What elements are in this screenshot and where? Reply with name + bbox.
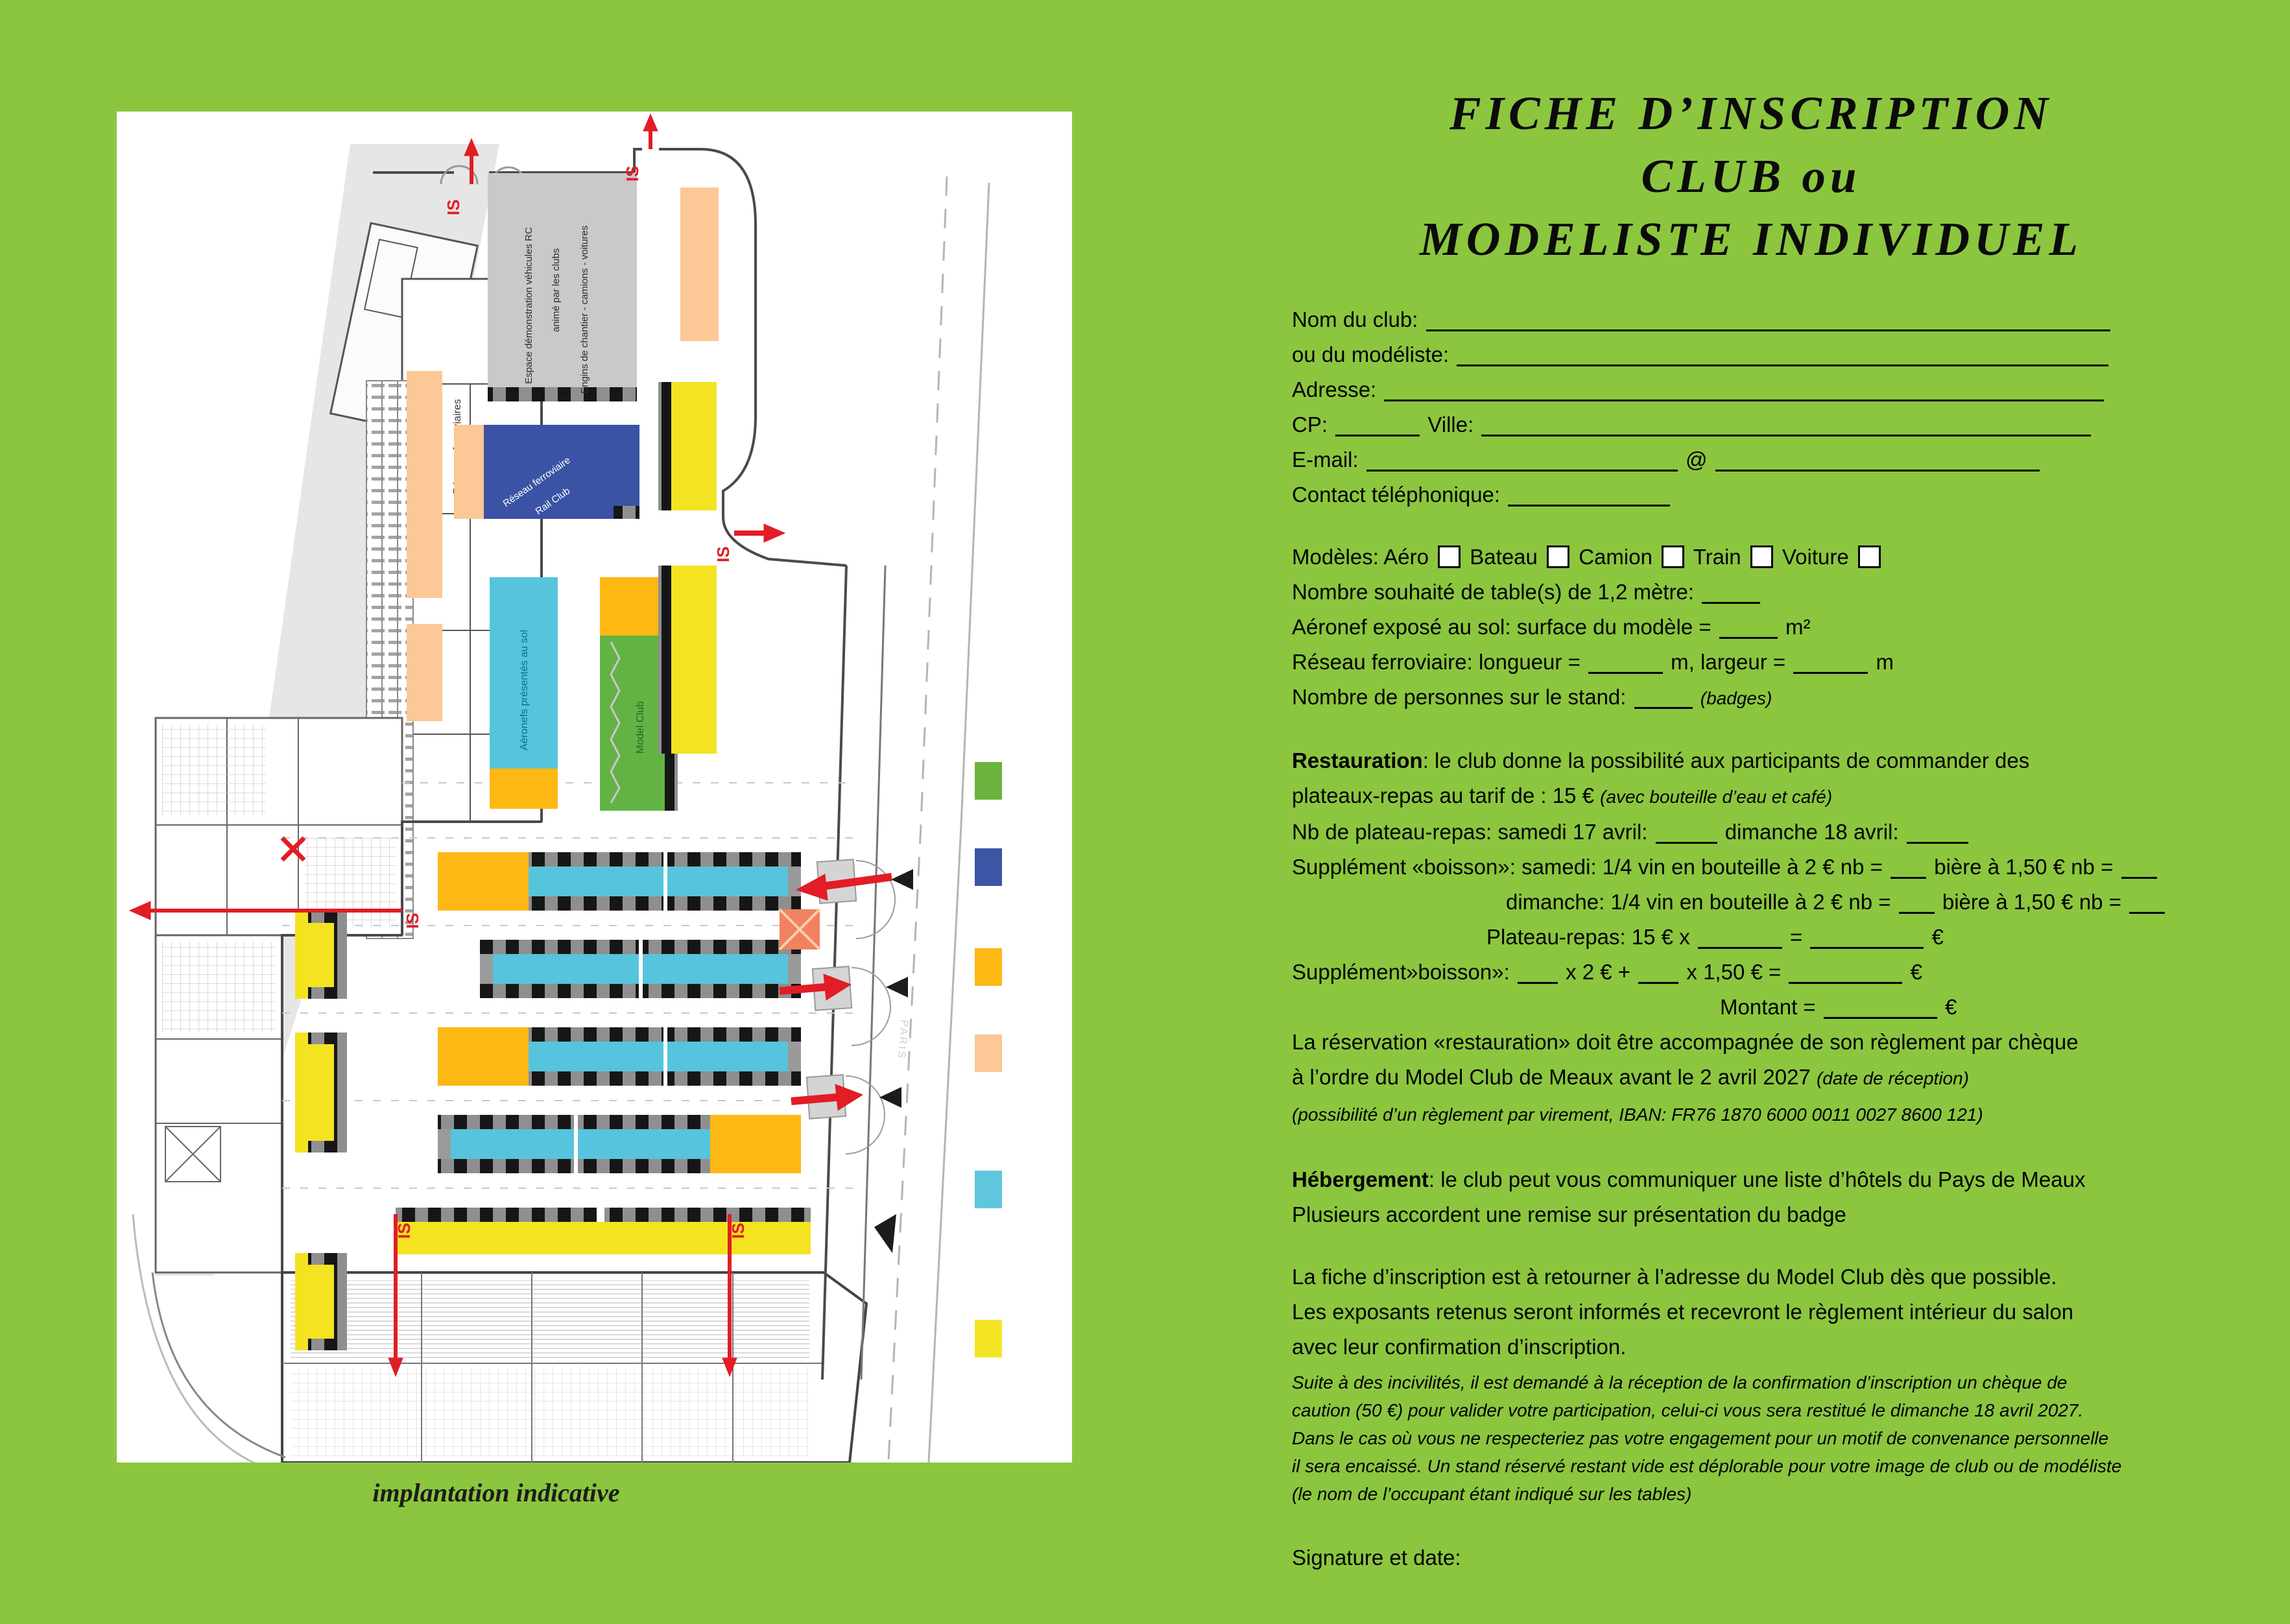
blank-field[interactable] [1457, 343, 2108, 366]
form-text: x 1,50 € = [1680, 960, 1787, 984]
blank-field[interactable] [1715, 448, 2040, 472]
form-text: m, largeur = [1665, 650, 1791, 674]
legend-swatch-yellow [975, 1320, 1002, 1357]
stand-peach-top-right [680, 187, 719, 341]
form-text: Bateau [1464, 545, 1544, 569]
form-line: Nombre de personnes sur le stand: (badge… [1292, 680, 2271, 716]
title-line-2: CLUB ou [1258, 145, 2244, 208]
form-text: Dans le cas où vous ne respecteriez pas … [1292, 1428, 2108, 1448]
form-line: Suite à des incivilités, il est demandé … [1292, 1368, 2271, 1396]
form-text: avec leur confirmation d’inscription. [1292, 1335, 1626, 1359]
form-text: Train [1688, 545, 1747, 569]
blank-field[interactable] [1719, 615, 1778, 639]
checkbox[interactable] [1438, 545, 1461, 568]
form-text: E-mail: [1292, 448, 1365, 472]
form-text: CP: [1292, 412, 1333, 436]
form-line: (possibilité d’un règlement par virement… [1292, 1096, 2271, 1132]
page: { "title": { "l1": "FICHE D’INSCRIPTION"… [0, 0, 2290, 1624]
svg-text:Model Club: Model Club [635, 701, 646, 754]
stand-rail-club: Réseau ferroviaire Rail Club [454, 425, 639, 519]
form-line: Nombre souhaité de table(s) de 1,2 mètre… [1292, 575, 2271, 610]
blank-field[interactable] [1426, 308, 2110, 331]
sidewalk-curve [152, 1272, 285, 1457]
blank-field[interactable] [1810, 925, 1924, 949]
svg-text:IS: IS [403, 913, 422, 929]
form-text: à l’ordre du Model Club de Meaux avant l… [1292, 1065, 1817, 1089]
form-line: Nb de plateau-repas: samedi 17 avril: di… [1292, 815, 2271, 850]
form-line: Nom du club: [1292, 302, 2271, 337]
svg-text:IS: IS [623, 165, 642, 182]
svg-text:Engins de chantier - camions -: Engins de chantier - camions - voitures [579, 226, 590, 394]
stand-yellow-left-2 [295, 1033, 347, 1152]
stand-bottom-strip [396, 1208, 811, 1254]
floor-plan-panel: PARIS [117, 112, 1072, 1463]
form-text: plateaux-repas au tarif de : 15 € [1292, 783, 1600, 807]
reserved-cross-box [780, 909, 820, 949]
stand-yellow-left-1 [295, 911, 347, 999]
blank-field[interactable] [1366, 448, 1678, 472]
road-name-label: PARIS [896, 1020, 910, 1060]
legend [975, 762, 1002, 1357]
svg-text:IS: IS [444, 199, 463, 215]
form-line: Modèles: Aéro Bateau Camion Train Voitur… [1292, 540, 2271, 575]
form-text: @ [1680, 448, 1713, 472]
blank-field[interactable] [1634, 686, 1693, 709]
table-row-4 [438, 1115, 801, 1173]
form-text: Voiture [1776, 545, 1855, 569]
form-line: avec leur confirmation d’inscription. [1292, 1330, 2271, 1365]
form-text: Contact téléphonique: [1292, 483, 1506, 507]
blank-field[interactable] [1518, 961, 1558, 984]
form-line: Montant = € [1720, 990, 2271, 1025]
blank-field[interactable] [1656, 820, 1717, 844]
plan-caption: implantation indicative [237, 1477, 756, 1508]
legend-swatch-orange [975, 948, 1002, 986]
svg-text:IS: IS [713, 546, 733, 562]
form-text: Nb de plateau-repas: samedi 17 avril: [1292, 820, 1654, 844]
form-text: Nombre de personnes sur le stand: [1292, 685, 1632, 709]
form-line: CP: Ville: [1292, 407, 2271, 442]
form-line: La fiche d’inscription est à retourner à… [1292, 1260, 2271, 1295]
form-text: dimanche: 1/4 vin en bouteille à 2 € nb … [1506, 890, 1897, 914]
form-text: € [1939, 995, 1957, 1019]
form-text: (le nom de l’occupant étant indiqué sur … [1292, 1484, 1691, 1504]
form-text: € [1926, 925, 1944, 949]
form-text: m² [1780, 615, 1811, 639]
blank-field[interactable] [1638, 961, 1678, 984]
legend-swatch-blue [975, 848, 1002, 886]
stand-peach-left-1 [407, 371, 442, 598]
stand-aeronefs: Aéronefs présentés au sol [490, 577, 558, 809]
form-line: Plusieurs accordent une remise sur prése… [1292, 1197, 2271, 1232]
form-text: Montant = [1720, 995, 1822, 1019]
form-text: Ville: [1422, 412, 1479, 436]
floor-plan-svg: PARIS [117, 112, 1072, 1463]
title-line-3: MODELISTE INDIVIDUEL [1258, 208, 2244, 270]
form-text: Adresse: [1292, 377, 1382, 401]
form-line: E-mail: @ [1292, 442, 2271, 477]
form-text: (badges) [1700, 688, 1772, 708]
checkbox[interactable] [1750, 545, 1773, 568]
form-line: La réservation «restauration» doit être … [1292, 1025, 2271, 1060]
blank-field[interactable] [1890, 855, 1926, 879]
blank-field[interactable] [1824, 996, 1937, 1019]
form-text: Hébergement [1292, 1167, 1429, 1191]
form-text: caution (50 €) pour valider votre partic… [1292, 1400, 2083, 1420]
blank-field[interactable] [1588, 651, 1663, 674]
form-line: dimanche: 1/4 vin en bouteille à 2 € nb … [1506, 885, 2271, 920]
form-text: bière à 1,50 € nb = [1928, 855, 2119, 879]
form-text: Signature et date: [1292, 1546, 1461, 1570]
svg-text:Aéronefs présentés au sol: Aéronefs présentés au sol [519, 630, 530, 750]
form-text: Camion [1573, 545, 1658, 569]
legend-swatch-peach [975, 1034, 1002, 1072]
road-lines [889, 176, 989, 1463]
table-row-1 [438, 852, 801, 911]
blank-field[interactable] [1384, 378, 2104, 401]
blank-field[interactable] [1481, 413, 2091, 436]
form-text: ou du modéliste: [1292, 342, 1455, 366]
form-line: Les exposants retenus seront informés et… [1292, 1295, 2271, 1330]
form-text: Supplément»boisson»: [1292, 960, 1516, 984]
checkbox[interactable] [1662, 545, 1684, 568]
corridor-doors [807, 859, 895, 1154]
form-text [1695, 685, 1700, 709]
form-text: (date de réception) [1817, 1068, 1969, 1088]
blank-field[interactable] [1702, 580, 1760, 604]
registration-form: Nom du club: ou du modéliste: Adresse: C… [1292, 302, 2271, 1575]
stand-yellow-right-2 [658, 566, 717, 754]
blank-field[interactable] [2121, 855, 2157, 879]
form-text: La fiche d’inscription est à retourner à… [1292, 1265, 2057, 1289]
form-line: Plateau-repas: 15 € x = € [1486, 920, 2271, 955]
form-text: Suite à des incivilités, il est demandé … [1292, 1372, 2067, 1392]
blank-field[interactable] [1789, 961, 1902, 984]
form-line: Adresse: [1292, 372, 2271, 407]
form-text: Nom du club: [1292, 307, 1424, 331]
form-line: ou du modéliste: [1292, 337, 2271, 372]
form-line: Aéronef exposé au sol: surface du modèle… [1292, 610, 2271, 645]
blank-field[interactable] [1335, 413, 1420, 436]
form-text: Supplément «boisson»: samedi: 1/4 vin en… [1292, 855, 1889, 879]
form-line: plateaux-repas au tarif de : 15 € (avec … [1292, 778, 2271, 815]
form-text: : le club donne la possibilité aux parti… [1423, 748, 2030, 772]
title-line-1: FICHE D’INSCRIPTION [1258, 82, 2244, 145]
legend-swatch-cyan [975, 1171, 1002, 1208]
form-line: caution (50 €) pour valider votre partic… [1292, 1396, 2271, 1424]
blank-field[interactable] [1907, 820, 1968, 844]
form-text: (avec bouteille d’eau et café) [1600, 787, 1832, 807]
form-text: dimanche 18 avril: [1719, 820, 1905, 844]
checkbox[interactable] [1858, 545, 1881, 568]
blank-field[interactable] [1793, 651, 1868, 674]
form-text: Plusieurs accordent une remise sur prése… [1292, 1202, 1846, 1226]
blank-field[interactable] [2129, 890, 2165, 914]
form-text: Réseau ferroviaire: longueur = [1292, 650, 1586, 674]
form-line: Supplément»boisson»: x 2 € + x 1,50 € = … [1292, 955, 2271, 990]
stand-yellow-left-3 [295, 1253, 347, 1350]
direction-triangles [874, 869, 913, 1253]
form-line: Signature et date: [1292, 1540, 2271, 1575]
form-line: à l’ordre du Model Club de Meaux avant l… [1292, 1060, 2271, 1096]
blank-field[interactable] [1698, 925, 1782, 949]
blank-field[interactable] [1899, 890, 1935, 914]
form-text: m [1870, 650, 1894, 674]
stand-espace-demo: Espace démonstration véhicules RC animé … [488, 173, 637, 401]
stand-peach-left-2 [407, 624, 442, 721]
svg-text:animé par les clubs: animé par les clubs [551, 248, 562, 332]
form-text: € [1904, 960, 1922, 984]
left-rooms [156, 718, 402, 1272]
form-text: La réservation «restauration» doit être … [1292, 1030, 2079, 1054]
form-text: = [1784, 925, 1809, 949]
svg-text:IS: IS [728, 1223, 748, 1239]
form-line: Réseau ferroviaire: longueur = m, largeu… [1292, 645, 2271, 680]
form-text: Aéronef exposé au sol: surface du modèle… [1292, 615, 1717, 639]
form-line: il sera encaissé. Un stand réservé resta… [1292, 1452, 2271, 1480]
form-text: x 2 € + [1560, 960, 1636, 984]
form-line: Restauration: le club donne la possibili… [1292, 743, 2271, 778]
form-text: Les exposants retenus seront informés et… [1292, 1300, 2073, 1324]
form-text: : le club peut vous communiquer une list… [1429, 1167, 2086, 1191]
form-line: Hébergement: le club peut vous communiqu… [1292, 1162, 2271, 1197]
form-line: (le nom de l’occupant étant indiqué sur … [1292, 1480, 2271, 1508]
form-text: Plateau-repas: 15 € x [1486, 925, 1696, 949]
stand-yellow-right-1 [658, 382, 717, 510]
table-row-2 [480, 940, 801, 998]
form-line: Dans le cas où vous ne respecteriez pas … [1292, 1424, 2271, 1452]
page-title: FICHE D’INSCRIPTION CLUB ou MODELISTE IN… [1258, 82, 2244, 270]
form-line: Contact téléphonique: [1292, 477, 2271, 512]
table-row-3 [438, 1027, 801, 1086]
svg-text:Espace démonstration véhicules: Espace démonstration véhicules RC [523, 227, 534, 384]
form-text: Restauration [1292, 748, 1423, 772]
form-text: Modèles: Aéro [1292, 545, 1435, 569]
checkbox[interactable] [1547, 545, 1569, 568]
form-text: Nombre souhaité de table(s) de 1,2 mètre… [1292, 580, 1700, 604]
bottom-building [282, 1272, 866, 1463]
legend-swatch-green [975, 762, 1002, 800]
form-text: (possibilité d’un règlement par virement… [1292, 1105, 1983, 1125]
blank-field[interactable] [1508, 483, 1670, 507]
form-text: il sera encaissé. Un stand réservé resta… [1292, 1456, 2121, 1476]
form-text: bière à 1,50 € nb = [1937, 890, 2127, 914]
svg-text:IS: IS [394, 1223, 414, 1239]
form-line: Supplément «boisson»: samedi: 1/4 vin en… [1292, 850, 2271, 885]
